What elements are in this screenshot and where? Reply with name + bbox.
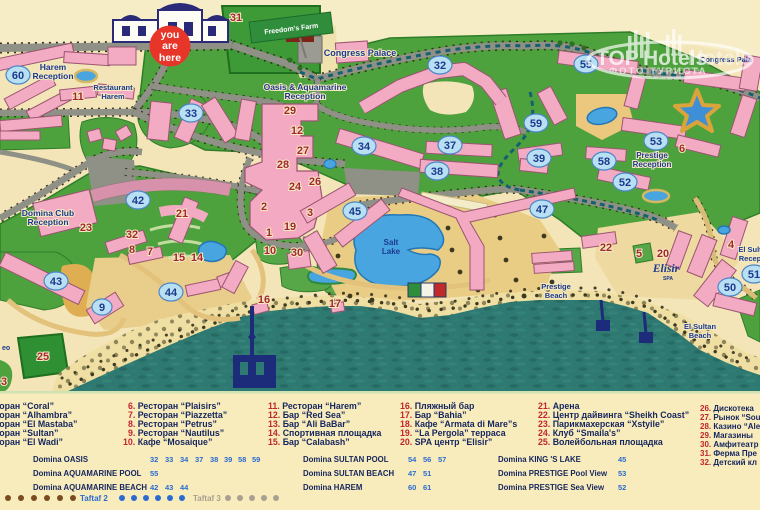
svg-text:Reception: Reception	[284, 91, 325, 101]
svg-text:5. Ресторан “El Wadi”: 5. Ресторан “El Wadi”	[0, 437, 63, 447]
svg-text:eo: eo	[2, 345, 10, 352]
svg-text:Taftaf 2: Taftaf 2	[80, 494, 108, 503]
svg-text:20. SPA центр “Elisir”: 20. SPA центр “Elisir”	[400, 437, 492, 447]
svg-text:59: 59	[530, 118, 542, 130]
svg-text:11: 11	[72, 91, 84, 103]
svg-text:23: 23	[80, 222, 92, 234]
svg-text:Domina AQUAMARINE BEACH: Domina AQUAMARINE BEACH	[33, 483, 147, 492]
svg-text:29: 29	[284, 105, 296, 117]
svg-text:52: 52	[619, 177, 631, 189]
svg-text:Taftaf 3: Taftaf 3	[193, 494, 221, 503]
svg-text:29. Магазины: 29. Магазины	[700, 431, 753, 440]
svg-text:3: 3	[307, 207, 313, 219]
svg-text:27. Рынок “Sou: 27. Рынок “Sou	[700, 413, 760, 422]
svg-text:33: 33	[185, 108, 197, 120]
svg-text:37: 37	[444, 140, 456, 152]
svg-text:Recep: Recep	[739, 254, 760, 263]
svg-text:6: 6	[679, 143, 685, 155]
svg-text:Domina PRESTIGE Pool View: Domina PRESTIGE Pool View	[498, 469, 608, 478]
svg-text:El Sult: El Sult	[738, 245, 760, 254]
svg-text:20: 20	[657, 248, 669, 260]
svg-text:15: 15	[173, 252, 185, 264]
svg-text:55: 55	[150, 469, 158, 478]
svg-text:25: 25	[37, 351, 49, 363]
svg-text:Congress Palace: Congress Palace	[324, 48, 397, 58]
svg-text:15. Бар “Calabash”: 15. Бар “Calabash”	[268, 437, 350, 447]
svg-text:Domina AQUAMARINE POOL: Domina AQUAMARINE POOL	[33, 469, 142, 478]
svg-text:2: 2	[261, 201, 267, 213]
svg-text:Domina OASIS: Domina OASIS	[33, 455, 88, 464]
svg-text:Beach: Beach	[689, 331, 712, 340]
svg-text:45: 45	[349, 206, 361, 218]
svg-text:30. Амфитеатр: 30. Амфитеатр	[700, 440, 759, 449]
svg-text:53: 53	[618, 469, 626, 478]
svg-text:El Sultan: El Sultan	[684, 322, 717, 331]
svg-text:Domina HAREM: Domina HAREM	[303, 483, 362, 492]
svg-text:31. Ферма Пре: 31. Ферма Пре	[700, 449, 758, 458]
svg-text:Domina PRESTIGE Sea View: Domina PRESTIGE Sea View	[498, 483, 605, 492]
svg-text:22: 22	[600, 242, 612, 254]
svg-text:34: 34	[358, 141, 371, 153]
svg-text:3: 3	[1, 376, 7, 388]
svg-text:Prestige: Prestige	[636, 151, 668, 160]
svg-text:58: 58	[598, 156, 610, 168]
svg-text:Reception: Reception	[633, 160, 672, 169]
svg-text:Domina KING 'S LAKE: Domina KING 'S LAKE	[498, 455, 581, 464]
svg-text:28: 28	[277, 159, 289, 171]
svg-text:51: 51	[748, 269, 760, 281]
svg-text:17: 17	[329, 298, 341, 310]
svg-text:Domina SULTAN BEACH: Domina SULTAN BEACH	[303, 469, 394, 478]
svg-text:27: 27	[297, 145, 309, 157]
svg-text:here: here	[159, 52, 181, 64]
svg-text:are: are	[162, 40, 178, 52]
svg-text:26: 26	[309, 176, 321, 188]
svg-text:32. Детский кл: 32. Детский кл	[700, 458, 757, 467]
svg-text:Restaurant: Restaurant	[93, 83, 133, 92]
svg-text:545657: 545657	[408, 455, 446, 464]
svg-text:43: 43	[50, 276, 62, 288]
svg-text:Domina SULTAN POOL: Domina SULTAN POOL	[303, 455, 389, 464]
svg-text:7: 7	[147, 246, 153, 258]
svg-text:42: 42	[132, 195, 144, 207]
svg-text:8: 8	[129, 244, 135, 256]
svg-text:32: 32	[126, 229, 138, 241]
svg-text:50: 50	[724, 282, 736, 294]
svg-text:60: 60	[12, 70, 24, 82]
svg-text:16: 16	[258, 294, 270, 306]
svg-text:47: 47	[536, 204, 548, 216]
svg-text:5: 5	[636, 248, 642, 260]
svg-text:Salt: Salt	[384, 238, 399, 247]
svg-text:52: 52	[618, 483, 626, 492]
svg-text:28. Казино “Ale: 28. Казино “Ale	[700, 422, 760, 431]
svg-text:4: 4	[728, 239, 735, 251]
svg-text:14: 14	[191, 252, 204, 264]
svg-text:53: 53	[650, 136, 662, 148]
svg-text:ТУРИСТА: ТУРИСТА	[645, 66, 703, 77]
svg-text:1: 1	[266, 227, 272, 239]
svg-text:10: 10	[264, 245, 276, 257]
svg-text:21: 21	[176, 208, 188, 220]
svg-text:12: 12	[291, 125, 303, 137]
svg-text:Prestige: Prestige	[541, 282, 571, 291]
svg-text:30: 30	[291, 247, 303, 259]
svg-text:38: 38	[431, 166, 443, 178]
svg-text:Beach: Beach	[545, 291, 568, 300]
svg-text:Harem: Harem	[101, 92, 125, 101]
svg-text:Lake: Lake	[382, 247, 401, 256]
svg-text:26. Дискотека: 26. Дискотека	[700, 404, 754, 413]
svg-text:39: 39	[533, 153, 545, 165]
svg-text:Reception: Reception	[27, 217, 68, 227]
svg-text:Elisir: Elisir	[652, 263, 680, 275]
svg-text:Reception: Reception	[32, 71, 73, 81]
svg-text:45: 45	[618, 455, 626, 464]
svg-text:10. Кафе “Mosaique”: 10. Кафе “Mosaique”	[123, 437, 212, 447]
svg-text:25. Волейбольная площадка: 25. Волейбольная площадка	[538, 437, 663, 447]
svg-text:31: 31	[230, 12, 242, 24]
svg-text:24: 24	[289, 181, 302, 193]
svg-text:32: 32	[434, 60, 446, 72]
svg-text:19: 19	[284, 221, 296, 233]
svg-text:44: 44	[165, 287, 178, 299]
svg-text:9: 9	[99, 302, 105, 314]
svg-text:424344: 424344	[150, 483, 189, 492]
svg-text:SPA: SPA	[663, 276, 673, 282]
